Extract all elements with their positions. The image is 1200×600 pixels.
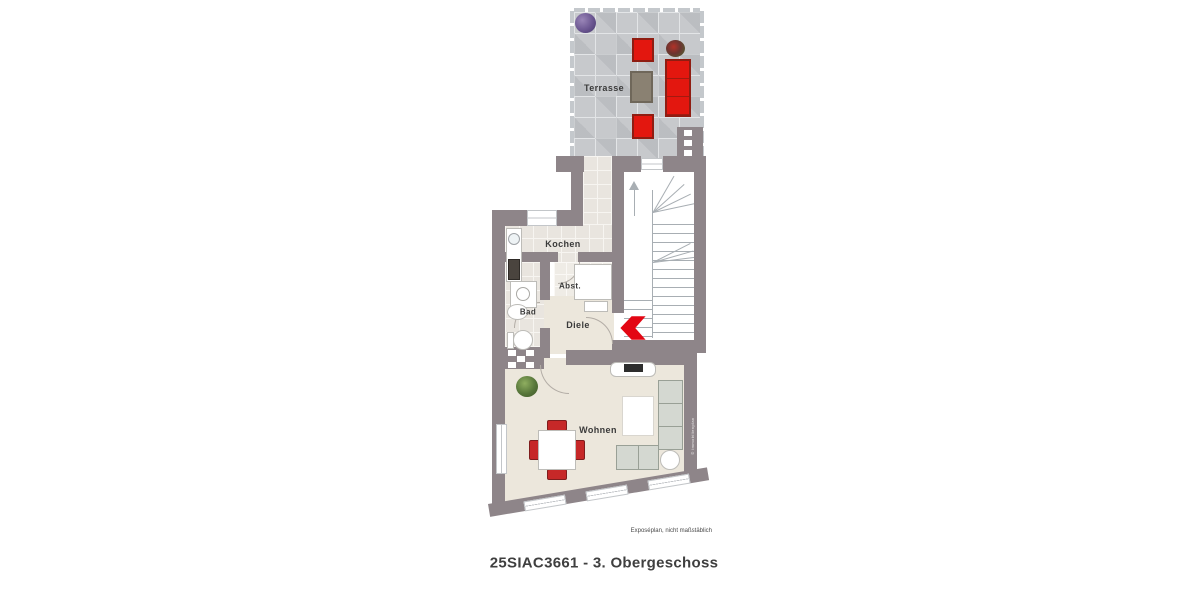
shaft-vent [508, 350, 516, 356]
terrace-sofa [665, 59, 691, 117]
living-window-left [496, 424, 507, 474]
plant-terrace-left [575, 13, 596, 33]
side-table [660, 450, 680, 470]
vertical-watermark: © Immobilienplan [690, 406, 698, 466]
bathroom-label: Bad [520, 308, 536, 317]
kitchen-sink [508, 233, 520, 245]
storage-dresser [584, 301, 608, 312]
sofa-long [658, 380, 683, 450]
dining-chair-bottom [547, 469, 567, 480]
shaft-vent [526, 350, 534, 356]
shaft-vent [517, 356, 525, 362]
stairs-treads-right [652, 224, 694, 340]
sofa-short [616, 445, 659, 470]
wall-outer-right [694, 156, 706, 353]
terrace-label: Terrasse [584, 83, 624, 93]
hallway-label: Diele [566, 320, 590, 330]
shaft-vent [526, 362, 534, 368]
chimney-vent [684, 130, 692, 136]
dining-table [538, 430, 576, 470]
kitchen-label: Kochen [545, 239, 580, 249]
wall [540, 252, 550, 300]
floor-plan-page: Terrasse [0, 0, 1200, 600]
kitchen-window [527, 210, 557, 226]
chimney-vent [684, 140, 692, 146]
stairwell [624, 172, 694, 340]
tv [624, 364, 643, 372]
rug [622, 396, 654, 436]
wall-stairwell-left [612, 156, 624, 313]
terrace-armchair-top [632, 38, 654, 62]
toilet [513, 330, 533, 350]
stove [508, 259, 520, 280]
wall [578, 252, 612, 262]
terrace-armchair-bottom [632, 114, 654, 139]
living-room-label: Wohnen [579, 425, 617, 435]
shaft-vent [508, 362, 516, 368]
stairwell-window [641, 158, 663, 170]
kitchen-corridor-floor [583, 156, 612, 228]
washing-machine-door-icon [516, 287, 530, 301]
terrace-coffee-table [630, 71, 653, 103]
terrace-railing-left [570, 8, 574, 160]
wall [557, 210, 583, 226]
wall [612, 156, 641, 172]
plan-title: 25SIAC3661 - 3. Obergeschoss [490, 555, 719, 572]
plant-terrace-right [666, 40, 685, 57]
plan-disclaimer: Exposéplan, nicht maßstäblich [631, 528, 712, 534]
storage-label: Abst. [559, 282, 581, 291]
plant-living-room [516, 376, 538, 397]
stairs-direction-line [634, 190, 635, 216]
stairs-up-arrow-icon [629, 181, 639, 190]
terrace-railing-top [570, 8, 704, 12]
